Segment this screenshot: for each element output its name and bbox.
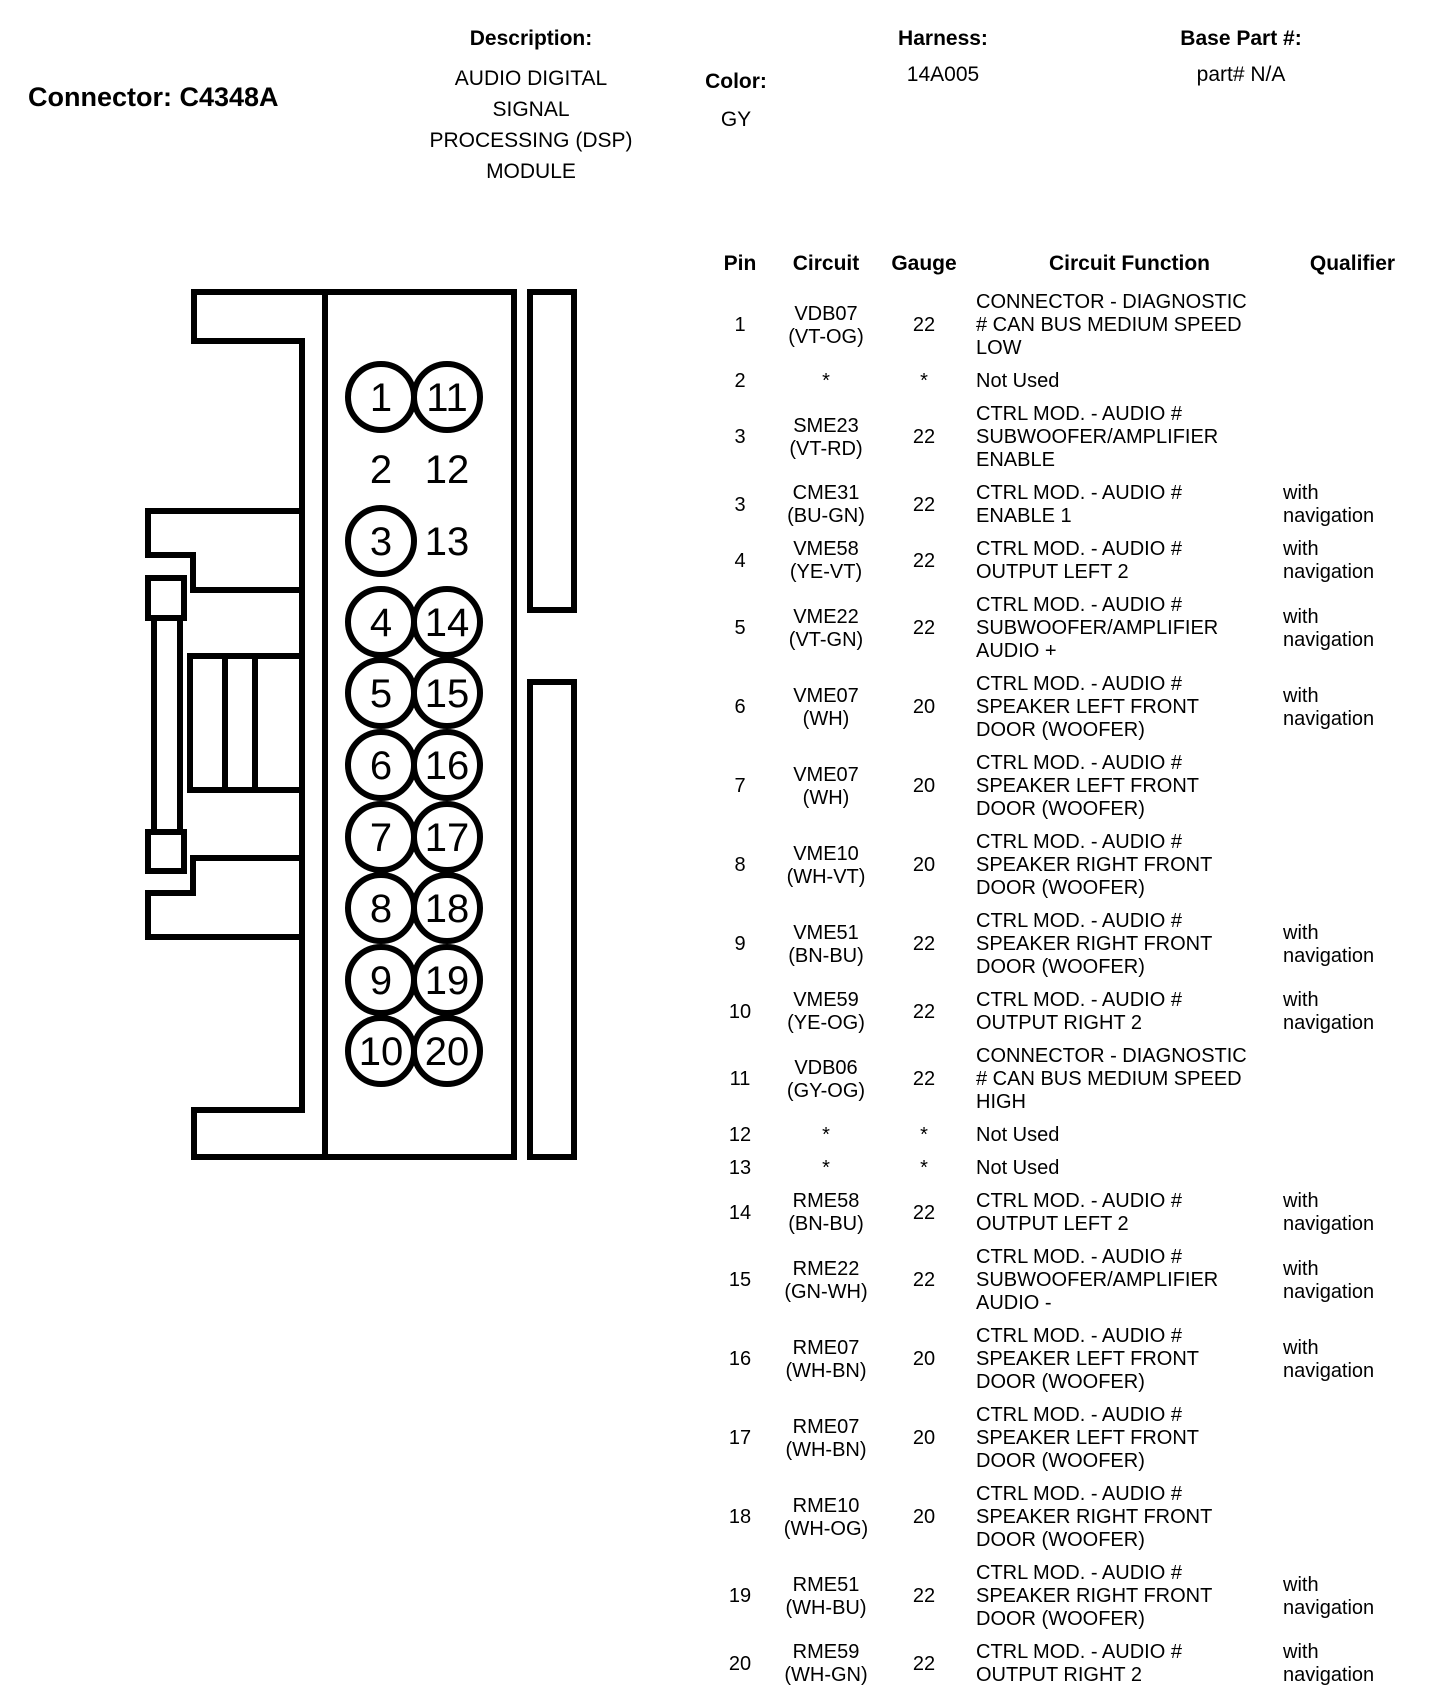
function-line: CTRL MOD. - AUDIO #	[976, 1483, 1283, 1506]
circuit-line: VDB06	[780, 1057, 872, 1080]
qualifier-line: with	[1283, 685, 1422, 708]
qualifier-line: with	[1283, 1641, 1422, 1664]
table-row: 5VME22(VT-GN)22CTRL MOD. - AUDIO #SUBWOO…	[700, 589, 1422, 668]
function-line: SPEAKER RIGHT FRONT	[976, 854, 1283, 877]
function-cell: CONNECTOR - DIAGNOSTIC# CAN BUS MEDIUM S…	[976, 1040, 1283, 1119]
pin-cell: 2	[700, 365, 780, 398]
function-line: CTRL MOD. - AUDIO #	[976, 482, 1283, 505]
harness-label: Harness:	[873, 27, 1013, 51]
function-line: CTRL MOD. - AUDIO #	[976, 538, 1283, 561]
function-cell: CTRL MOD. - AUDIO #OUTPUT RIGHT 2	[976, 1636, 1283, 1692]
qualifier-line: navigation	[1283, 1597, 1422, 1620]
pin-number-17: 17	[425, 816, 470, 860]
base-part-value: part# N/A	[1156, 63, 1326, 87]
circuit-line: (BN-BU)	[780, 1213, 872, 1236]
circuit-cell: RME07(WH-BN)	[780, 1320, 872, 1399]
function-cell: CTRL MOD. - AUDIO #SPEAKER RIGHT FRONTDO…	[976, 826, 1283, 905]
table-row: 6VME07(WH)20CTRL MOD. - AUDIO #SPEAKER L…	[700, 668, 1422, 747]
function-line: DOOR (WOOFER)	[976, 1371, 1283, 1394]
circuit-line: VME07	[780, 685, 872, 708]
description-value: AUDIO DIGITALSIGNALPROCESSING (DSP)MODUL…	[411, 63, 651, 187]
qualifier-line: with	[1283, 606, 1422, 629]
function-line: CONNECTOR - DIAGNOSTIC	[976, 1045, 1283, 1068]
qualifier-cell: withnavigation	[1283, 1320, 1422, 1399]
qualifier-line: navigation	[1283, 1281, 1422, 1304]
function-line: SPEAKER LEFT FRONT	[976, 1348, 1283, 1371]
gauge-cell: 22	[872, 1185, 976, 1241]
qualifier-cell: withnavigation	[1283, 1557, 1422, 1636]
gauge-cell: 22	[872, 1241, 976, 1320]
qualifier-cell: withnavigation	[1283, 589, 1422, 668]
circuit-line: *	[780, 1157, 872, 1180]
function-line: SUBWOOFER/AMPLIFIER	[976, 1269, 1283, 1292]
circuit-line: VDB07	[780, 303, 872, 326]
pin-number-11: 11	[426, 376, 468, 420]
function-line: DOOR (WOOFER)	[976, 719, 1283, 742]
gauge-cell: 22	[872, 533, 976, 589]
qualifier-cell	[1283, 1399, 1422, 1478]
circuit-cell: VME07(WH)	[780, 668, 872, 747]
pin-number-16: 16	[425, 744, 470, 788]
function-line: CTRL MOD. - AUDIO #	[976, 1190, 1283, 1213]
latch-notch-bottom	[148, 832, 184, 871]
function-line: SPEAKER LEFT FRONT	[976, 1427, 1283, 1450]
function-line: CTRL MOD. - AUDIO #	[976, 831, 1283, 854]
function-cell: CTRL MOD. - AUDIO #SPEAKER RIGHT FRONTDO…	[976, 1557, 1283, 1636]
circuit-line: VME07	[780, 764, 872, 787]
qualifier-cell: withnavigation	[1283, 533, 1422, 589]
table-row: 2**Not Used	[700, 365, 1422, 398]
function-cell: CTRL MOD. - AUDIO #SPEAKER LEFT FRONTDOO…	[976, 1399, 1283, 1478]
circuit-cell: CME31(BU-GN)	[780, 477, 872, 533]
function-line: CTRL MOD. - AUDIO #	[976, 989, 1283, 1012]
pin-cell: 16	[700, 1320, 780, 1399]
pin-number-7: 7	[370, 816, 392, 860]
pin-cell: 12	[700, 1119, 780, 1152]
function-line: Not Used	[976, 370, 1283, 393]
circuit-cell: VME07(WH)	[780, 747, 872, 826]
pin-number-13: 13	[425, 520, 470, 564]
qualifier-line: navigation	[1283, 561, 1422, 584]
circuit-cell: SME23(VT-RD)	[780, 398, 872, 477]
qualifier-line: navigation	[1283, 1213, 1422, 1236]
pin-number-9: 9	[370, 959, 392, 1003]
function-cell: CTRL MOD. - AUDIO #OUTPUT LEFT 2	[976, 1185, 1283, 1241]
qualifier-cell: withnavigation	[1283, 1241, 1422, 1320]
qualifier-line: with	[1283, 1258, 1422, 1281]
circuit-line: RME58	[780, 1190, 872, 1213]
function-cell: CTRL MOD. - AUDIO #OUTPUT RIGHT 2	[976, 984, 1283, 1040]
gauge-cell: 20	[872, 826, 976, 905]
latch-comb-box	[190, 656, 302, 790]
circuit-line: (WH)	[780, 708, 872, 731]
table-row: 17RME07(WH-BN)20CTRL MOD. - AUDIO #SPEAK…	[700, 1399, 1422, 1478]
function-line: CTRL MOD. - AUDIO #	[976, 594, 1283, 617]
qualifier-cell	[1283, 826, 1422, 905]
base-part-label: Base Part #:	[1156, 27, 1326, 51]
column-header-gauge: Gauge	[872, 252, 976, 286]
function-line: DOOR (WOOFER)	[976, 1608, 1283, 1631]
circuit-cell: *	[780, 1119, 872, 1152]
pin-number-14: 14	[425, 601, 470, 645]
circuit-cell: VME10(WH-VT)	[780, 826, 872, 905]
table-row: 8VME10(WH-VT)20CTRL MOD. - AUDIO #SPEAKE…	[700, 826, 1422, 905]
function-line: # CAN BUS MEDIUM SPEED	[976, 1068, 1283, 1091]
table-row: 7VME07(WH)20CTRL MOD. - AUDIO #SPEAKER L…	[700, 747, 1422, 826]
gauge-cell: 22	[872, 477, 976, 533]
pin-cell: 10	[700, 984, 780, 1040]
circuit-cell: VDB06(GY-OG)	[780, 1040, 872, 1119]
circuit-line: (WH)	[780, 787, 872, 810]
gauge-cell: 20	[872, 1399, 976, 1478]
function-cell: CTRL MOD. - AUDIO #SUBWOOFER/AMPLIFIERAU…	[976, 589, 1283, 668]
function-line: CTRL MOD. - AUDIO #	[976, 673, 1283, 696]
color-block: Color: GY	[696, 70, 776, 132]
function-line: DOOR (WOOFER)	[976, 956, 1283, 979]
function-line: CTRL MOD. - AUDIO #	[976, 403, 1283, 426]
connector-title: Connector: C4348A	[28, 82, 279, 113]
function-line: DOOR (WOOFER)	[976, 1450, 1283, 1473]
circuit-cell: RME10(WH-OG)	[780, 1478, 872, 1557]
pin-cell: 9	[700, 905, 780, 984]
qualifier-line: navigation	[1283, 505, 1422, 528]
pinout-table: Pin Circuit Gauge Circuit Function Quali…	[700, 252, 1422, 1692]
gauge-cell: 22	[872, 984, 976, 1040]
qualifier-cell	[1283, 1478, 1422, 1557]
pin-cell: 20	[700, 1636, 780, 1692]
pin-cell: 6	[700, 668, 780, 747]
gauge-cell: 22	[872, 1636, 976, 1692]
column-header-qualifier: Qualifier	[1283, 252, 1422, 286]
qualifier-line: navigation	[1283, 945, 1422, 968]
description-line: PROCESSING (DSP)	[411, 125, 651, 156]
pin-number-19: 19	[425, 959, 470, 1003]
qualifier-cell	[1283, 286, 1422, 365]
function-line: AUDIO +	[976, 640, 1283, 663]
function-line: ENABLE 1	[976, 505, 1283, 528]
function-cell: CTRL MOD. - AUDIO #SUBWOOFER/AMPLIFIERAU…	[976, 1241, 1283, 1320]
circuit-line: RME51	[780, 1574, 872, 1597]
qualifier-line: with	[1283, 482, 1422, 505]
qualifier-line: with	[1283, 922, 1422, 945]
function-line: SPEAKER LEFT FRONT	[976, 775, 1283, 798]
circuit-line: CME31	[780, 482, 872, 505]
gauge-cell: 22	[872, 1040, 976, 1119]
table-row: 12**Not Used	[700, 1119, 1422, 1152]
pin-cell: 18	[700, 1478, 780, 1557]
qualifier-cell: withnavigation	[1283, 477, 1422, 533]
function-line: AUDIO -	[976, 1292, 1283, 1315]
circuit-cell: RME51(WH-BU)	[780, 1557, 872, 1636]
circuit-line: (VT-OG)	[780, 326, 872, 349]
function-line: CTRL MOD. - AUDIO #	[976, 1641, 1283, 1664]
circuit-line: (BU-GN)	[780, 505, 872, 528]
gauge-cell: 22	[872, 1557, 976, 1636]
pin-cell: 1	[700, 286, 780, 365]
function-line: Not Used	[976, 1157, 1283, 1180]
description-line: MODULE	[411, 156, 651, 187]
gauge-cell: *	[872, 365, 976, 398]
qualifier-line: navigation	[1283, 629, 1422, 652]
circuit-cell: RME59(WH-GN)	[780, 1636, 872, 1692]
qualifier-line: with	[1283, 989, 1422, 1012]
latch-post	[154, 618, 180, 832]
function-cell: CTRL MOD. - AUDIO #OUTPUT LEFT 2	[976, 533, 1283, 589]
circuit-line: VME10	[780, 843, 872, 866]
circuit-line: (GY-OG)	[780, 1080, 872, 1103]
function-line: CONNECTOR - DIAGNOSTIC	[976, 291, 1283, 314]
function-cell: CTRL MOD. - AUDIO #SPEAKER RIGHT FRONTDO…	[976, 905, 1283, 984]
circuit-line: VME22	[780, 606, 872, 629]
circuit-line: RME07	[780, 1416, 872, 1439]
qualifier-line: with	[1283, 538, 1422, 561]
function-cell: Not Used	[976, 365, 1283, 398]
circuit-cell: VME51(BN-BU)	[780, 905, 872, 984]
qualifier-line: with	[1283, 1190, 1422, 1213]
gauge-cell: 22	[872, 905, 976, 984]
circuit-cell: VDB07(VT-OG)	[780, 286, 872, 365]
function-line: SPEAKER RIGHT FRONT	[976, 933, 1283, 956]
qualifier-cell	[1283, 365, 1422, 398]
function-line: SPEAKER RIGHT FRONT	[976, 1506, 1283, 1529]
connector-rail-bottom	[530, 682, 574, 1157]
pin-cell: 5	[700, 589, 780, 668]
table-row: 11VDB06(GY-OG)22CONNECTOR - DIAGNOSTIC# …	[700, 1040, 1422, 1119]
pin-number-5: 5	[370, 672, 392, 716]
function-line: CTRL MOD. - AUDIO #	[976, 1562, 1283, 1585]
pin-number-15: 15	[425, 672, 470, 716]
function-line: LOW	[976, 337, 1283, 360]
function-line: SUBWOOFER/AMPLIFIER	[976, 617, 1283, 640]
qualifier-cell: withnavigation	[1283, 1636, 1422, 1692]
function-line: ENABLE	[976, 449, 1283, 472]
function-line: CTRL MOD. - AUDIO #	[976, 1404, 1283, 1427]
pin-cell: 17	[700, 1399, 780, 1478]
pin-cell: 11	[700, 1040, 780, 1119]
table-row: 3CME31(BU-GN)22CTRL MOD. - AUDIO #ENABLE…	[700, 477, 1422, 533]
color-value: GY	[696, 108, 776, 132]
qualifier-line: with	[1283, 1574, 1422, 1597]
circuit-line: VME59	[780, 989, 872, 1012]
qualifier-cell: withnavigation	[1283, 1185, 1422, 1241]
circuit-cell: *	[780, 365, 872, 398]
description-block: Description: AUDIO DIGITALSIGNALPROCESSI…	[411, 27, 651, 187]
pin-number-10: 10	[359, 1030, 404, 1074]
color-label: Color:	[696, 70, 776, 94]
column-header-circuit: Circuit	[780, 252, 872, 286]
circuit-line: (VT-GN)	[780, 629, 872, 652]
table-row: 19RME51(WH-BU)22CTRL MOD. - AUDIO #SPEAK…	[700, 1557, 1422, 1636]
function-line: OUTPUT RIGHT 2	[976, 1012, 1283, 1035]
pin-number-2: 2	[370, 448, 392, 492]
pin-cell: 19	[700, 1557, 780, 1636]
function-cell: CTRL MOD. - AUDIO #SPEAKER LEFT FRONTDOO…	[976, 668, 1283, 747]
function-line: Not Used	[976, 1124, 1283, 1147]
gauge-cell: 22	[872, 398, 976, 477]
circuit-cell: VME59(YE-OG)	[780, 984, 872, 1040]
pin-cell: 3	[700, 477, 780, 533]
table-row: 20RME59(WH-GN)22CTRL MOD. - AUDIO #OUTPU…	[700, 1636, 1422, 1692]
circuit-cell: VME22(VT-GN)	[780, 589, 872, 668]
circuit-line: (WH-BN)	[780, 1360, 872, 1383]
table-row: 9VME51(BN-BU)22CTRL MOD. - AUDIO #SPEAKE…	[700, 905, 1422, 984]
function-line: CTRL MOD. - AUDIO #	[976, 752, 1283, 775]
circuit-line: RME22	[780, 1258, 872, 1281]
gauge-cell: 22	[872, 589, 976, 668]
gauge-cell: 20	[872, 1320, 976, 1399]
description-label: Description:	[411, 27, 651, 51]
circuit-cell: RME07(WH-BN)	[780, 1399, 872, 1478]
table-header-row: Pin Circuit Gauge Circuit Function Quali…	[700, 252, 1422, 286]
table-row: 16RME07(WH-BN)20CTRL MOD. - AUDIO #SPEAK…	[700, 1320, 1422, 1399]
pin-number-4: 4	[370, 601, 392, 645]
connector-rail-top	[530, 292, 574, 610]
table-row: 10VME59(YE-OG)22CTRL MOD. - AUDIO #OUTPU…	[700, 984, 1422, 1040]
circuit-line: (WH-OG)	[780, 1518, 872, 1541]
circuit-cell: RME22(GN-WH)	[780, 1241, 872, 1320]
column-header-circuit-function: Circuit Function	[976, 252, 1283, 286]
column-header-pin: Pin	[700, 252, 780, 286]
pin-cell: 3	[700, 398, 780, 477]
qualifier-line: navigation	[1283, 1012, 1422, 1035]
function-cell: CTRL MOD. - AUDIO #SPEAKER LEFT FRONTDOO…	[976, 747, 1283, 826]
gauge-cell: 20	[872, 1478, 976, 1557]
latch-notch-top	[148, 578, 184, 618]
pin-number-3: 3	[370, 520, 392, 564]
pin-number-12: 12	[425, 448, 470, 492]
pin-cell: 4	[700, 533, 780, 589]
pin-number-18: 18	[425, 887, 470, 931]
qualifier-cell	[1283, 1119, 1422, 1152]
function-line: SPEAKER LEFT FRONT	[976, 696, 1283, 719]
function-cell: Not Used	[976, 1152, 1283, 1185]
table-row: 15RME22(GN-WH)22CTRL MOD. - AUDIO #SUBWO…	[700, 1241, 1422, 1320]
function-line: OUTPUT LEFT 2	[976, 561, 1283, 584]
qualifier-line: navigation	[1283, 708, 1422, 731]
circuit-line: RME10	[780, 1495, 872, 1518]
description-line: SIGNAL	[411, 94, 651, 125]
pin-cell: 8	[700, 826, 780, 905]
qualifier-cell	[1283, 398, 1422, 477]
harness-value: 14A005	[873, 63, 1013, 87]
pin-number-1: 1	[370, 376, 392, 420]
table-row: 18RME10(WH-OG)20CTRL MOD. - AUDIO #SPEAK…	[700, 1478, 1422, 1557]
pin-number-20: 20	[425, 1030, 470, 1074]
circuit-cell: RME58(BN-BU)	[780, 1185, 872, 1241]
gauge-cell: 20	[872, 747, 976, 826]
circuit-line: VME51	[780, 922, 872, 945]
function-line: HIGH	[976, 1091, 1283, 1114]
gauge-cell: *	[872, 1152, 976, 1185]
function-line: DOOR (WOOFER)	[976, 877, 1283, 900]
circuit-line: SME23	[780, 415, 872, 438]
gauge-cell: 20	[872, 668, 976, 747]
qualifier-line: navigation	[1283, 1360, 1422, 1383]
circuit-line: (YE-VT)	[780, 561, 872, 584]
pin-number-8: 8	[370, 887, 392, 931]
circuit-line: RME07	[780, 1337, 872, 1360]
gauge-cell: *	[872, 1119, 976, 1152]
table-row: 13**Not Used	[700, 1152, 1422, 1185]
circuit-line: (GN-WH)	[780, 1281, 872, 1304]
table-row: 1VDB07(VT-OG)22CONNECTOR - DIAGNOSTIC# C…	[700, 286, 1422, 365]
qualifier-line: navigation	[1283, 1664, 1422, 1687]
pin-number-6: 6	[370, 744, 392, 788]
circuit-line: (WH-BU)	[780, 1597, 872, 1620]
function-line: SUBWOOFER/AMPLIFIER	[976, 426, 1283, 449]
qualifier-cell	[1283, 1152, 1422, 1185]
circuit-line: RME59	[780, 1641, 872, 1664]
function-line: SPEAKER RIGHT FRONT	[976, 1585, 1283, 1608]
circuit-line: (WH-BN)	[780, 1439, 872, 1462]
table-row: 3SME23(VT-RD)22CTRL MOD. - AUDIO #SUBWOO…	[700, 398, 1422, 477]
function-cell: CTRL MOD. - AUDIO #ENABLE 1	[976, 477, 1283, 533]
harness-block: Harness: 14A005	[873, 27, 1013, 87]
pin-cell: 14	[700, 1185, 780, 1241]
pin-cell: 7	[700, 747, 780, 826]
function-line: DOOR (WOOFER)	[976, 798, 1283, 821]
table-row: 4VME58(YE-VT)22CTRL MOD. - AUDIO #OUTPUT…	[700, 533, 1422, 589]
circuit-line: *	[780, 370, 872, 393]
function-cell: CTRL MOD. - AUDIO #SUBWOOFER/AMPLIFIEREN…	[976, 398, 1283, 477]
qualifier-cell: withnavigation	[1283, 905, 1422, 984]
circuit-line: (VT-RD)	[780, 438, 872, 461]
function-line: CTRL MOD. - AUDIO #	[976, 910, 1283, 933]
qualifier-cell: withnavigation	[1283, 668, 1422, 747]
circuit-line: (YE-OG)	[780, 1012, 872, 1035]
pin-cell: 13	[700, 1152, 780, 1185]
qualifier-cell	[1283, 1040, 1422, 1119]
function-line: DOOR (WOOFER)	[976, 1529, 1283, 1552]
circuit-line: *	[780, 1124, 872, 1147]
function-line: CTRL MOD. - AUDIO #	[976, 1246, 1283, 1269]
qualifier-cell	[1283, 747, 1422, 826]
circuit-cell: VME58(YE-VT)	[780, 533, 872, 589]
function-cell: CONNECTOR - DIAGNOSTIC# CAN BUS MEDIUM S…	[976, 286, 1283, 365]
circuit-line: (WH-GN)	[780, 1664, 872, 1687]
pin-cell: 15	[700, 1241, 780, 1320]
gauge-cell: 22	[872, 286, 976, 365]
function-line: # CAN BUS MEDIUM SPEED	[976, 314, 1283, 337]
function-line: OUTPUT RIGHT 2	[976, 1664, 1283, 1687]
qualifier-line: with	[1283, 1337, 1422, 1360]
circuit-line: (BN-BU)	[780, 945, 872, 968]
function-cell: CTRL MOD. - AUDIO #SPEAKER RIGHT FRONTDO…	[976, 1478, 1283, 1557]
function-cell: Not Used	[976, 1119, 1283, 1152]
circuit-line: (WH-VT)	[780, 866, 872, 889]
function-line: CTRL MOD. - AUDIO #	[976, 1325, 1283, 1348]
description-line: AUDIO DIGITAL	[411, 63, 651, 94]
function-cell: CTRL MOD. - AUDIO #SPEAKER LEFT FRONTDOO…	[976, 1320, 1283, 1399]
circuit-line: VME58	[780, 538, 872, 561]
function-line: OUTPUT LEFT 2	[976, 1213, 1283, 1236]
qualifier-cell: withnavigation	[1283, 984, 1422, 1040]
circuit-cell: *	[780, 1152, 872, 1185]
base-part-block: Base Part #: part# N/A	[1156, 27, 1326, 87]
table-row: 14RME58(BN-BU)22CTRL MOD. - AUDIO #OUTPU…	[700, 1185, 1422, 1241]
